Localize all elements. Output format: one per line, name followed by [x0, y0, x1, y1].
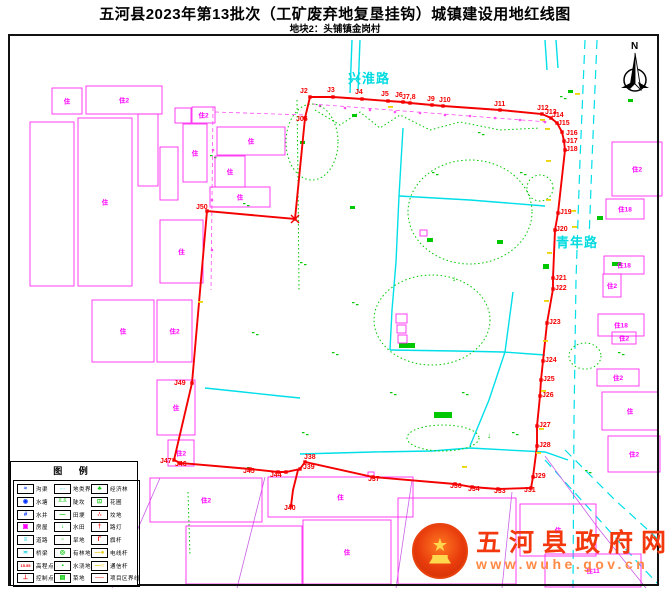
- boundary-marker-dot: [394, 111, 397, 114]
- legend-item: ≈沟渠: [17, 483, 54, 495]
- fence-line: [312, 104, 548, 122]
- gov-site-url: www.wuhe.gov.cn: [476, 556, 670, 572]
- pole-mark: [572, 226, 577, 228]
- legend-item: ╨╨陡坎: [54, 496, 91, 508]
- legend-label: 通信杆: [110, 562, 128, 570]
- grass-mark: [394, 394, 397, 395]
- page: { "title": "五河县2023年第13批次（工矿废弃地复垦挂钩）城镇建设…: [0, 0, 670, 594]
- legend-symbol-icon: ▣: [17, 522, 34, 532]
- legend-label: 路灯: [110, 523, 122, 531]
- legend-symbol-icon: ≡: [17, 535, 34, 545]
- vegetation-mark: [350, 206, 355, 209]
- grass-mark: [564, 98, 567, 99]
- small-structure: [397, 325, 406, 333]
- grass-mark: [520, 172, 523, 173]
- building-label: 住2: [613, 373, 624, 382]
- boundary-point-label: J49: [174, 380, 186, 387]
- legend-item: —田埂: [54, 509, 91, 521]
- legend-symbol-icon: —●: [91, 548, 108, 558]
- legend-item: ▣房屋: [17, 521, 54, 533]
- vegetation-mark: [597, 216, 603, 220]
- pole-mark: [539, 428, 544, 430]
- legend-label: 有林地: [73, 549, 91, 557]
- building-label: 住: [120, 327, 127, 336]
- legend-symbol-icon: ╨╨: [54, 497, 71, 507]
- building-label: 住2: [169, 327, 180, 336]
- boundary-point-label: J17: [566, 138, 578, 145]
- road-label: 青年路: [556, 235, 598, 250]
- ditch-line: [470, 292, 513, 446]
- building-label: 住: [227, 167, 234, 176]
- building-label: 住: [337, 493, 344, 502]
- ditch-line: [390, 128, 403, 350]
- boundary-point-label: J25: [543, 376, 555, 383]
- grass-mark: [482, 134, 485, 135]
- boundary-vertex: [441, 104, 444, 107]
- boundary-marker-dot: [369, 109, 372, 112]
- legend-label: 房屋: [36, 523, 48, 531]
- vegetation-mark: [434, 412, 452, 418]
- boundary-point-label: J24: [545, 357, 557, 364]
- legend-symbol-icon: ▪: [54, 561, 71, 571]
- building-label: 住2: [619, 334, 630, 343]
- ditch-line: [390, 350, 545, 355]
- boundary-point-label: J26: [542, 392, 554, 399]
- pole-mark: [388, 106, 393, 108]
- grass-mark: [432, 172, 435, 173]
- boundary-point-label: J5: [381, 91, 389, 98]
- boundary-vertex: [560, 130, 563, 133]
- boundary-point-label: J05: [296, 116, 308, 123]
- building-outline: [175, 108, 191, 123]
- legend-item: ∴坟地: [91, 509, 140, 521]
- vegetation-mark: [543, 264, 549, 269]
- legend-item: #水井: [17, 509, 54, 521]
- legend-item: ──项目区界线: [91, 572, 140, 584]
- boundary-marker-dot: [469, 115, 472, 118]
- building-label: 住2: [629, 450, 640, 459]
- legend-item: 15.55高程点: [17, 560, 54, 572]
- ditch-line: [399, 196, 545, 206]
- grass-mark: [622, 354, 625, 355]
- building-label: 住: [237, 193, 244, 202]
- legend-item: Γ旗杆: [91, 534, 140, 546]
- grass-mark: [332, 352, 335, 353]
- grass-mark: [256, 334, 259, 335]
- legend-item: ▫旱地: [54, 534, 91, 546]
- legend-label: 电线杆: [110, 549, 128, 557]
- boundary-point-label: J44: [270, 472, 282, 479]
- grass-mark: [462, 392, 465, 393]
- grass-mark: [304, 264, 307, 265]
- legend-item: ▤菜地: [54, 572, 91, 584]
- ditch-line: [545, 40, 547, 70]
- grass-mark: [336, 354, 339, 355]
- paddy-mark: ↓: [452, 274, 456, 283]
- legend-symbol-icon: ──: [91, 573, 108, 583]
- grass-mark: [524, 174, 527, 175]
- road-label: 兴淮路: [348, 71, 390, 86]
- boundary-point-label: J11: [494, 101, 505, 108]
- legend-item: †路灯: [91, 521, 140, 533]
- building-label: 住2: [201, 496, 212, 505]
- building-label: 住: [102, 198, 109, 207]
- boundary-point-label: J2: [300, 88, 308, 95]
- north-label: N: [631, 41, 638, 52]
- legend-label: 经济林: [110, 485, 128, 493]
- land-type-boundary: [407, 425, 479, 451]
- national-emblem-icon: ★: [412, 523, 468, 579]
- parcel-line: [237, 477, 265, 588]
- boundary-vertex: [540, 112, 543, 115]
- legend-symbol-icon: —○: [91, 561, 108, 571]
- legend-item: —●电线杆: [91, 547, 140, 559]
- boundary-point-label: J14: [552, 112, 564, 119]
- building-label: 住: [173, 403, 180, 412]
- legend-symbol-icon: ≈: [17, 484, 34, 494]
- legend-label: 菜地: [73, 574, 85, 582]
- legend-label: 水田: [73, 523, 85, 531]
- grass-mark: [300, 262, 303, 263]
- legend-symbol-icon: †: [91, 522, 108, 532]
- legend-symbol-icon: —: [54, 510, 71, 520]
- grass-mark: [390, 392, 393, 393]
- paddy-mark: ↓: [487, 431, 491, 440]
- pole-mark: [545, 128, 550, 130]
- pole-mark: [571, 210, 576, 212]
- small-structure: [420, 230, 427, 236]
- legend-label: 水井: [36, 511, 48, 519]
- project-boundary-spur: [291, 470, 298, 506]
- grass-mark: [247, 205, 250, 206]
- pole-mark: [198, 301, 203, 303]
- building-label: 住: [178, 247, 185, 256]
- north-arrow: N: [621, 41, 649, 91]
- legend-item: ♣经济林: [91, 483, 140, 495]
- grass-mark: [352, 302, 355, 303]
- pole-mark: [536, 452, 541, 454]
- grass-mark: [618, 352, 621, 353]
- pole-mark: [543, 340, 548, 342]
- boundary-point-label: J28: [539, 442, 551, 449]
- boundary-point-label: J3: [327, 87, 335, 94]
- boundary-point-label: J20: [556, 226, 568, 233]
- building-label: 住2: [632, 165, 643, 174]
- legend-label: 坟地: [110, 511, 122, 519]
- pole-mark: [462, 466, 467, 468]
- grass-mark: [243, 203, 246, 204]
- legend-label: 田埂: [73, 511, 85, 519]
- boundary-vertex: [284, 470, 287, 473]
- vegetation-mark: [497, 240, 503, 244]
- building-label: 住2: [607, 281, 618, 290]
- boundary-point-label: J31: [524, 487, 536, 494]
- pole-mark: [541, 390, 546, 392]
- land-type-boundary: [408, 160, 532, 264]
- grass-mark: [589, 472, 592, 473]
- legend-label: 旱地: [73, 536, 85, 544]
- legend-title: 图 例: [11, 462, 137, 478]
- boundary-marker-dot: [544, 121, 547, 124]
- legend-item: ▪水浇地: [54, 560, 91, 572]
- fence-line: [215, 112, 305, 115]
- road-edge-line: [589, 40, 597, 240]
- boundary-point-label: J27: [539, 422, 551, 429]
- boundary-point-label: J38: [304, 454, 316, 461]
- legend-label: 项目区界线: [110, 574, 140, 582]
- boundary-point-label: J50: [196, 204, 208, 211]
- boundary-point-label: J33: [494, 488, 506, 495]
- building-label: 住: [344, 548, 351, 557]
- boundary-vertex: [308, 95, 311, 98]
- ditch-line: [300, 448, 568, 460]
- boundary-vertex: [298, 467, 301, 470]
- legend-label: 道路: [36, 536, 48, 544]
- vegetation-mark: [628, 99, 633, 102]
- land-type-boundary: [188, 492, 190, 556]
- building-outline: [160, 147, 178, 200]
- legend-grid: ≈沟渠◉水塘#水井▣房屋≡道路≍桥梁15.55高程点⊥控制点····地类界╨╨陡…: [13, 480, 140, 587]
- boundary-point-label: J16: [566, 130, 578, 137]
- boundary-vertex: [360, 97, 363, 100]
- boundary-point-label: J22: [555, 285, 567, 292]
- legend-label: 沟渠: [36, 485, 48, 493]
- legend-symbol-icon: ≍: [17, 548, 34, 558]
- legend-label: 旗杆: [110, 536, 122, 544]
- legend-item: ↓水田: [54, 521, 91, 533]
- pole-mark: [575, 93, 580, 95]
- legend-symbol-icon: ▫: [54, 535, 71, 545]
- boundary-point-label: J4: [355, 89, 363, 96]
- building-label: 住18: [617, 261, 631, 270]
- boundary-vertex: [430, 103, 433, 106]
- boundary-marker-dot: [444, 114, 447, 117]
- gov-site-name: 五河县政府网: [476, 530, 670, 556]
- legend-label: 控制点: [36, 574, 54, 582]
- gov-text: 五河县政府网 www.wuhe.gov.cn: [476, 530, 670, 572]
- boundary-point-label: J37: [368, 476, 380, 483]
- boundary-marker-dot: [344, 107, 347, 110]
- grass-mark: [252, 332, 255, 333]
- legend-item: ≡道路: [17, 534, 54, 546]
- pole-mark: [547, 252, 552, 254]
- legend-symbol-icon: #: [17, 510, 34, 520]
- ditch-line: [556, 40, 558, 68]
- grass-mark: [210, 155, 213, 156]
- building-outline: [138, 114, 158, 186]
- legend-label: 桥梁: [36, 549, 48, 557]
- boundary-point-label: J7,8: [402, 94, 416, 101]
- boundary-point-label: J15: [558, 120, 570, 127]
- fence-line: [211, 107, 213, 290]
- building-label: 住: [192, 149, 199, 158]
- building-label: 住18: [614, 321, 628, 330]
- gov-logo: ★ 五河县政府网 www.wuhe.gov.cn: [412, 523, 670, 579]
- grass-mark: [436, 174, 439, 175]
- legend-label: 地类界: [73, 485, 91, 493]
- legend-label: 花圃: [110, 498, 122, 506]
- legend-item: —○通信杆: [91, 560, 140, 572]
- building-outline: [30, 122, 74, 286]
- boundary-marker-dot: [419, 112, 422, 115]
- grass-mark: [478, 132, 481, 133]
- pole-mark: [544, 300, 549, 302]
- boundary-point-label: J46: [175, 461, 187, 468]
- grass-mark: [585, 470, 588, 471]
- boundary-point-label: J40: [284, 505, 296, 512]
- boundary-vertex: [386, 99, 389, 102]
- legend-item: ≍桥梁: [17, 547, 54, 559]
- grass-mark: [302, 432, 305, 433]
- legend-symbol-icon: ····: [54, 484, 71, 494]
- legend-item: ⊡花圃: [91, 496, 140, 508]
- grass-mark: [466, 394, 469, 395]
- small-structure: [398, 335, 407, 343]
- land-type-boundary: [286, 104, 338, 180]
- legend-item: ····地类界: [54, 483, 91, 495]
- legend-item: ⊥控制点: [17, 572, 54, 584]
- boundary-marker-dot: [212, 149, 215, 152]
- building-label: 住: [64, 97, 71, 106]
- land-type-boundary: [569, 343, 601, 369]
- land-type-boundary: [527, 175, 553, 201]
- boundary-marker-dot: [211, 249, 214, 252]
- legend-box: 图 例 ≈沟渠◉水塘#水井▣房屋≡道路≍桥梁15.55高程点⊥控制点····地类…: [10, 461, 138, 586]
- boundary-vertex: [190, 381, 193, 384]
- emblem-gate-icon: [429, 555, 451, 564]
- pole-mark: [546, 199, 551, 201]
- boundary-point-label: J18: [566, 146, 578, 153]
- boundary-point-label: J36: [450, 483, 462, 490]
- pole-mark: [546, 160, 551, 162]
- boundary-vertex: [408, 101, 411, 104]
- boundary-marker-dot: [519, 119, 522, 122]
- boundary-point-label: J45: [243, 468, 255, 475]
- boundary-point-label: J21: [555, 275, 567, 282]
- boundary-point-label: J47: [160, 458, 172, 465]
- building-label: 住: [248, 137, 255, 146]
- grass-mark: [560, 96, 563, 97]
- vegetation-mark: [568, 90, 573, 93]
- small-structure: [396, 314, 407, 323]
- boundary-point-label: J29: [534, 473, 546, 480]
- legend-label: 陡坎: [73, 498, 85, 506]
- legend-label: 高程点: [36, 562, 54, 570]
- boundary-point-label: J19: [560, 209, 572, 216]
- grass-mark: [516, 434, 519, 435]
- boundary-vertex: [331, 95, 334, 98]
- vegetation-mark: [427, 238, 433, 242]
- road-edge-line: [573, 40, 585, 588]
- legend-symbol-icon: ◎: [54, 548, 71, 558]
- legend-item: ◎有林地: [54, 547, 91, 559]
- ditch-line: [205, 388, 300, 398]
- boundary-point-label: J10: [439, 97, 451, 104]
- boundary-point-label: J9: [427, 96, 435, 103]
- building-label: 住2: [119, 96, 130, 105]
- boundary-vertex: [498, 108, 501, 111]
- legend-item: ◉水塘: [17, 496, 54, 508]
- building-label: 住2: [176, 449, 187, 458]
- legend-symbol-icon: ♣: [91, 484, 108, 494]
- boundary-point-label: J39: [303, 464, 315, 471]
- legend-symbol-icon: Γ: [91, 535, 108, 545]
- legend-symbol-icon: ∴: [91, 510, 108, 520]
- boundary-point-label: J34: [468, 486, 480, 493]
- grass-mark: [356, 304, 359, 305]
- legend-symbol-icon: ⊡: [91, 497, 108, 507]
- grass-mark: [306, 434, 309, 435]
- legend-label: 水浇地: [73, 562, 91, 570]
- legend-symbol-icon: ◉: [17, 497, 34, 507]
- grass-mark: [512, 432, 515, 433]
- legend-label: 水塘: [36, 498, 48, 506]
- building-label: 住: [627, 407, 634, 416]
- legend-symbol-icon: 15.55: [17, 561, 34, 571]
- building-outline: [186, 526, 302, 584]
- emblem-star-icon: ★: [432, 536, 448, 554]
- building-label: 住2: [198, 111, 209, 120]
- building-label: 住18: [618, 205, 632, 214]
- legend-symbol-icon: ↓: [54, 522, 71, 532]
- boundary-marker-dot: [494, 117, 497, 120]
- boundary-marker-dot: [211, 199, 214, 202]
- vegetation-mark: [399, 343, 415, 348]
- legend-symbol-icon: ▤: [54, 573, 71, 583]
- legend-symbol-icon: ⊥: [17, 573, 34, 583]
- boundary-point-label: J23: [549, 319, 561, 326]
- vegetation-mark: [352, 114, 357, 117]
- pole-mark: [540, 119, 545, 121]
